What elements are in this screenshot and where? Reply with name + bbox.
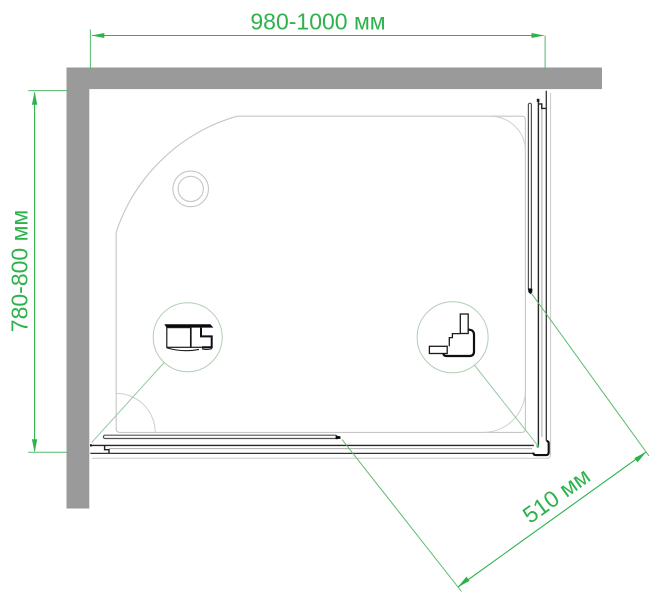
- svg-text:510 мм: 510 мм: [518, 463, 595, 529]
- svg-text:980-1000 мм: 980-1000 мм: [250, 9, 385, 35]
- svg-text:780-800 мм: 780-800 мм: [6, 210, 32, 332]
